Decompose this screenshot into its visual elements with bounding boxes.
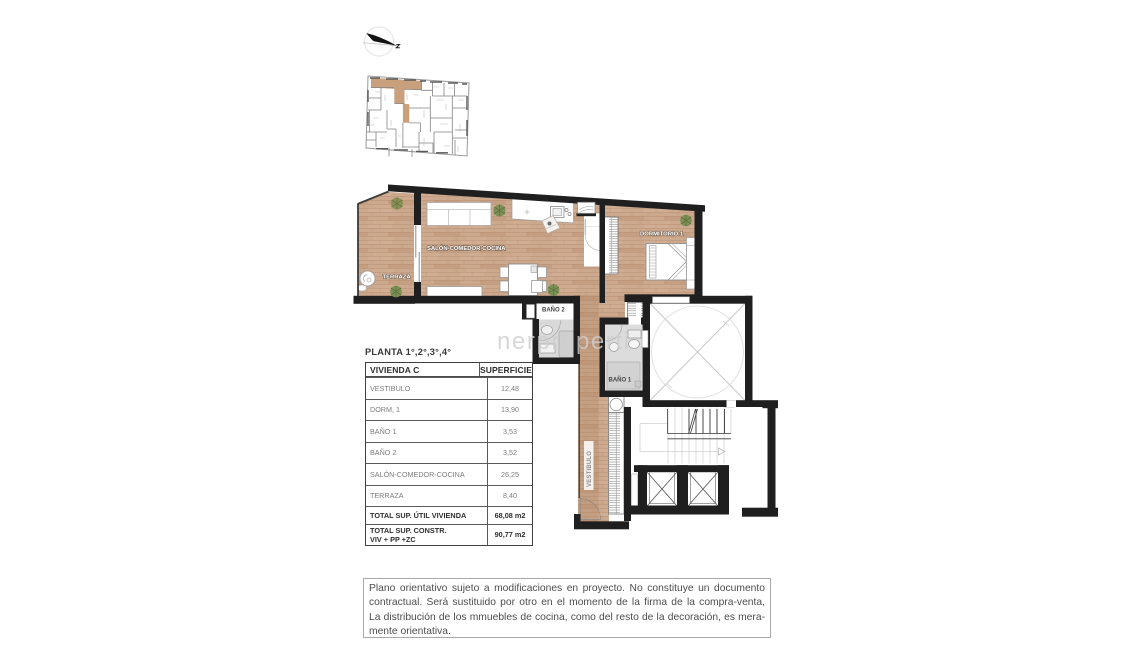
svg-text:BAÑO 1: BAÑO 1 [609,377,632,384]
svg-text:DORMITORIO 1: DORMITORIO 1 [640,232,684,238]
svg-text:TERRAZA: TERRAZA [383,275,412,281]
svg-text:BAÑO 2: BAÑO 2 [542,307,565,314]
svg-text:nerproperti: nerproperti [497,328,631,355]
svg-text:VESTIBULO: VESTIBULO [587,451,593,487]
svg-text:SALÓN-COMEDOR-COCINA: SALÓN-COMEDOR-COCINA [427,244,506,252]
